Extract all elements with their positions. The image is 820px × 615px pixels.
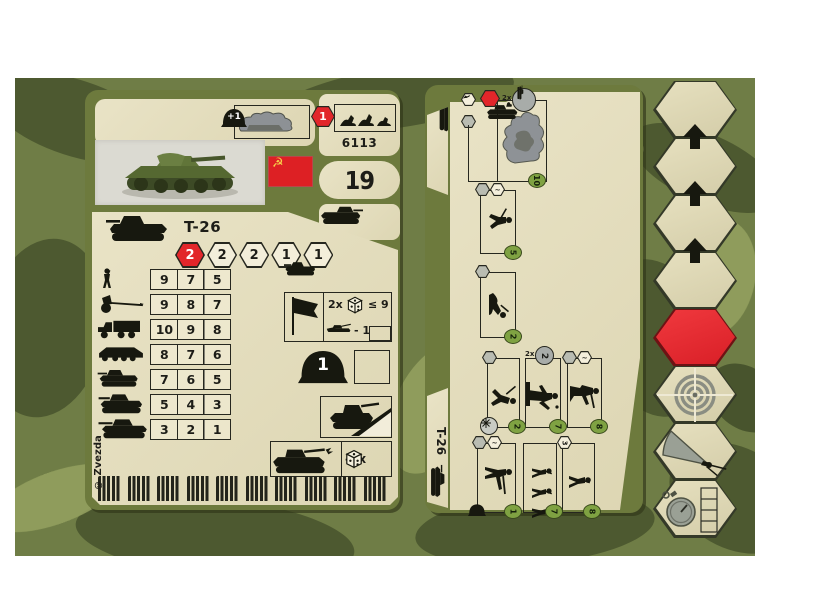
points-pill: 19 xyxy=(319,161,400,199)
helmet-bonus-value: +1 xyxy=(221,112,247,122)
advance-arrow-icon xyxy=(683,124,707,150)
table-value: 10 xyxy=(150,319,178,340)
hex-timer xyxy=(653,480,737,538)
bullet-group xyxy=(216,476,239,501)
bullet-group xyxy=(128,476,151,501)
assault-tab: 1 6113 xyxy=(319,94,400,156)
grenade-multiplier: 2x xyxy=(525,350,534,358)
state-march: 7 xyxy=(523,443,557,513)
gray-hex-badge xyxy=(562,351,577,364)
table-row: 765 xyxy=(96,368,231,390)
camouflage-background: +1 1 xyxy=(15,78,755,556)
hex-red xyxy=(653,309,737,367)
tank-type-icon xyxy=(319,204,363,226)
dice-hex-badge: ~ xyxy=(577,351,592,364)
flag-rule-cond: ≤ 9 xyxy=(368,298,389,311)
table-row: 975 xyxy=(96,268,231,290)
crawling-soldier-silhouette xyxy=(485,291,511,321)
flag-rule-empty-box xyxy=(369,326,391,341)
unit-stat-card: +1 1 xyxy=(85,90,400,510)
target-icon xyxy=(653,366,737,424)
tank-circle-badge xyxy=(512,88,536,112)
marker-empty-box xyxy=(354,350,390,384)
assault-value-hex: 1 xyxy=(311,106,335,127)
gray-hex-badge xyxy=(482,351,497,364)
infantry-icon xyxy=(96,268,118,289)
state-grenade: 7 xyxy=(525,358,561,428)
flag-rule-cell: 2x ≤ 9 - 1 xyxy=(324,293,391,341)
flag-rule-box: 2x ≤ 9 - 1 xyxy=(284,292,392,342)
stopwatch-icon xyxy=(653,480,737,538)
helmet-marker: 1 xyxy=(298,346,348,390)
state-number-badge: 7 xyxy=(545,504,563,519)
unit-tab-bottom: T-26 xyxy=(427,388,448,508)
table-value: 2 xyxy=(177,419,205,440)
table-value: 5 xyxy=(150,394,178,415)
table-row: 1098 xyxy=(96,318,231,340)
points-value: 19 xyxy=(345,166,375,195)
unit-title: T-26 xyxy=(184,218,221,236)
halftrack-icon xyxy=(96,343,146,362)
table-value: 8 xyxy=(150,344,178,365)
state-destroyed: 10 xyxy=(497,100,547,182)
dice-icon xyxy=(344,294,366,316)
flag-cell xyxy=(285,293,324,341)
rifleman-silhouette xyxy=(483,462,513,496)
helmet-value: 1 xyxy=(298,355,348,375)
table-row: 321 xyxy=(96,418,231,440)
table-value: 5 xyxy=(203,369,231,390)
state-casualty: 5 xyxy=(480,190,516,254)
walking-soldier-silhouette xyxy=(567,466,591,494)
tank-icon xyxy=(430,463,446,501)
bullet-group xyxy=(364,476,387,501)
table-value: 6 xyxy=(177,369,205,390)
number-hex-badge: 3 xyxy=(557,436,572,449)
state-number-badge: 2 xyxy=(504,329,522,344)
gun-hex-badge xyxy=(461,93,476,106)
table-value: 7 xyxy=(203,294,231,315)
state-kneel-fire: 8 xyxy=(567,358,602,428)
kneeling-shooter-silhouette xyxy=(570,378,600,410)
state-number-badge: 2 xyxy=(508,419,526,434)
table-value: 7 xyxy=(177,344,205,365)
anti-tank-gun-icon xyxy=(96,293,144,314)
helmet-plus-icon: +1 xyxy=(221,107,247,131)
bullet-group xyxy=(275,476,298,501)
table-value: 7 xyxy=(177,269,205,290)
gray-hex-badge xyxy=(472,436,487,449)
table-value: 7 xyxy=(150,369,178,390)
silver-number-badge: 2 xyxy=(535,346,554,365)
wheel-circle-badge xyxy=(480,417,498,435)
bullet-group xyxy=(334,476,357,501)
grenadier-silhouette xyxy=(526,378,560,410)
heavy-tank-icon xyxy=(96,418,150,439)
hull-down-tank-icon xyxy=(321,397,391,436)
screenshot: +1 1 xyxy=(0,0,820,615)
flag-icon xyxy=(288,295,320,337)
table-value: 9 xyxy=(150,269,178,290)
gray-hex-badge xyxy=(475,265,490,278)
table-value: 9 xyxy=(150,294,178,315)
damage-flowchart-card: T-26 10 2x xyxy=(425,85,643,513)
dice-hex-badge: ~ xyxy=(490,183,505,196)
hit-soldier-silhouette xyxy=(490,379,518,411)
assault-infantry-icon xyxy=(336,106,394,130)
fire-penalty-box: -2x xyxy=(270,441,392,477)
connector-line xyxy=(468,125,469,182)
hex-fire-arc xyxy=(653,423,737,481)
table-value: 9 xyxy=(177,319,205,340)
flag-rule-mult: 2x xyxy=(328,298,343,311)
table-value: 8 xyxy=(177,294,205,315)
state-fall: 2 xyxy=(487,358,520,428)
light-tank-icon xyxy=(96,368,142,388)
movement-hex: 2 xyxy=(239,242,269,268)
hex-target xyxy=(653,366,737,424)
state-number-badge: 5 xyxy=(504,245,522,260)
state-number-badge: 8 xyxy=(590,419,608,434)
table-row: 987 xyxy=(96,293,231,315)
title-tank-icon xyxy=(98,214,178,244)
table-value: 5 xyxy=(203,269,231,290)
card-body: T-26 2 2 2 1 1 975 9 xyxy=(92,212,398,505)
table-row: 543 xyxy=(96,393,231,415)
state-number-badge: 1 xyxy=(504,504,522,519)
movement-hex-current: 2 xyxy=(175,242,205,268)
flag-rule-penalty: - 1 xyxy=(354,324,370,337)
advance-arrow-icon xyxy=(683,238,707,264)
table-row: 876 xyxy=(96,343,231,365)
fallen-soldier-silhouette xyxy=(483,205,513,235)
silver-badge-value: 2 xyxy=(539,352,549,358)
advance-arrow-icon xyxy=(683,181,707,207)
tank-model-photo xyxy=(95,140,265,205)
truck-icon xyxy=(96,318,142,339)
fire-arc-icon xyxy=(653,423,737,481)
bullet-strip xyxy=(98,476,394,502)
table-value: 1 xyxy=(203,419,231,440)
state-stand-fire: 1 xyxy=(477,443,516,513)
suppressed-tank-icon xyxy=(326,323,352,337)
hammer-sickle-icon: ☭ xyxy=(272,156,284,171)
top-multiplier: 2x xyxy=(502,94,511,102)
hex-track xyxy=(653,81,739,541)
copyright: © Zvezda xyxy=(93,408,104,490)
state-walk: 8 xyxy=(562,443,595,513)
wreck-bonus-box: +1 xyxy=(234,105,310,139)
hull-down-box xyxy=(320,396,392,438)
table-value: 8 xyxy=(203,319,231,340)
fire-penalty-cell: -2x xyxy=(342,442,391,476)
bullet-group xyxy=(157,476,180,501)
firing-tank-cell xyxy=(271,442,342,476)
dice-hex-badge: ~ xyxy=(487,436,502,449)
firing-tank-icon xyxy=(272,444,338,474)
unit-tab-top xyxy=(427,107,448,195)
hex-badge-value: 3 xyxy=(561,440,569,445)
top-banner: +1 xyxy=(95,99,315,146)
table-value: 6 xyxy=(203,344,231,365)
bullet-group xyxy=(187,476,210,501)
bullet-group xyxy=(246,476,269,501)
tank-icon xyxy=(517,86,525,101)
table-value: 3 xyxy=(203,394,231,415)
state-number-badge: 7 xyxy=(549,419,567,434)
tab-unit-title: T-26 xyxy=(427,418,448,464)
table-value: 3 xyxy=(150,419,178,440)
table-value: 4 xyxy=(177,394,205,415)
assault-soldiers-box xyxy=(334,104,396,132)
state-number-badge: 10 xyxy=(528,173,546,188)
state-crawl: 2 xyxy=(480,272,516,338)
tank-icon xyxy=(284,260,317,277)
gray-hex-badge xyxy=(475,183,490,196)
soviet-flag: ☭ xyxy=(268,156,313,187)
unit-photo xyxy=(95,140,265,205)
state-number-badge: 8 xyxy=(583,504,601,519)
product-code: 6113 xyxy=(319,136,400,150)
dice-icon xyxy=(342,447,366,471)
movement-hex: 2 xyxy=(207,242,237,268)
red-hex-badge xyxy=(480,90,500,107)
helmet-icon xyxy=(468,503,486,518)
bullet-group xyxy=(305,476,328,501)
